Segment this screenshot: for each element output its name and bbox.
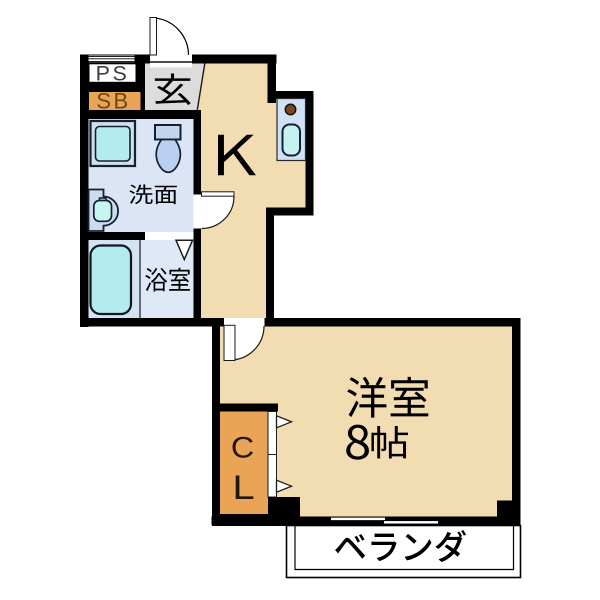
svg-text:PS: PS [96, 62, 130, 86]
svg-text:SB: SB [96, 89, 130, 114]
svg-text:C: C [231, 430, 254, 464]
svg-text:L: L [232, 468, 254, 506]
